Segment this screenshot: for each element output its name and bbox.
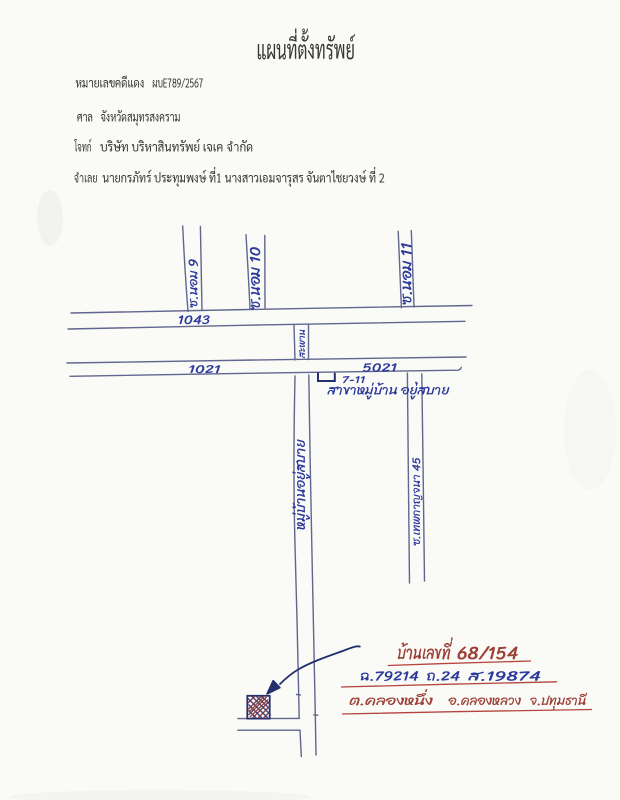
svg-text:อ.คลองหลวง: อ.คลองหลวง [448,690,521,713]
svg-text:1043: 1043 [178,308,211,332]
svg-text:แผนที่ตั้งทรัพย์: แผนที่ตั้งทรัพย์ [257,27,356,65]
svg-text:บริษัท บริหาสินทรัพย์ เจเค จำก: บริษัท บริหาสินทรัพย์ เจเค จำกัด [100,138,253,155]
svg-text:จังหวัดสมุทรสงคราม: จังหวัดสมุทรสงคราม [101,108,181,127]
svg-text:หมู่บ้านอยู่สบาย: หมู่บ้านอยู่สบาย [288,439,313,530]
svg-text:ส.19874: ส.19874 [468,664,541,689]
svg-text:ต.คลองหนึ่ง: ต.คลองหนึ่ง [349,689,434,713]
svg-text:จำเลย: จำเลย [74,169,98,186]
svg-text:นายกรภัทร์ ประทุมพงษ์ ที่1 นาง: นายกรภัทร์ ประทุมพงษ์ ที่1 นางสาวเอมจารุ… [102,166,384,187]
svg-text:ศาล: ศาล [77,108,93,125]
svg-text:ซ.นอม 9: ซ.นอม 9 [183,259,206,308]
svg-text:โจทก์: โจทก์ [74,138,92,155]
svg-text:ซ.นอม 10: ซ.นอม 10 [241,246,269,310]
svg-text:หมายเลขคดีแดง: หมายเลขคดีแดง [75,74,144,90]
svg-text:สะพาน: สะพาน [293,329,311,358]
svg-text:ผบE789/2567: ผบE789/2567 [152,73,203,91]
svg-text:สาขาหมู่บ้าน อยู่สบาย: สาขาหมู่บ้าน อยู่สบาย [326,379,450,403]
svg-text:ซ.เทพกาญจนา 45: ซ.เทพกาญจนา 45 [407,457,427,546]
svg-text:5021: 5021 [363,356,398,378]
svg-text:1021: 1021 [188,358,220,380]
svg-text:ซ.นอม 11: ซ.นอม 11 [392,243,421,305]
